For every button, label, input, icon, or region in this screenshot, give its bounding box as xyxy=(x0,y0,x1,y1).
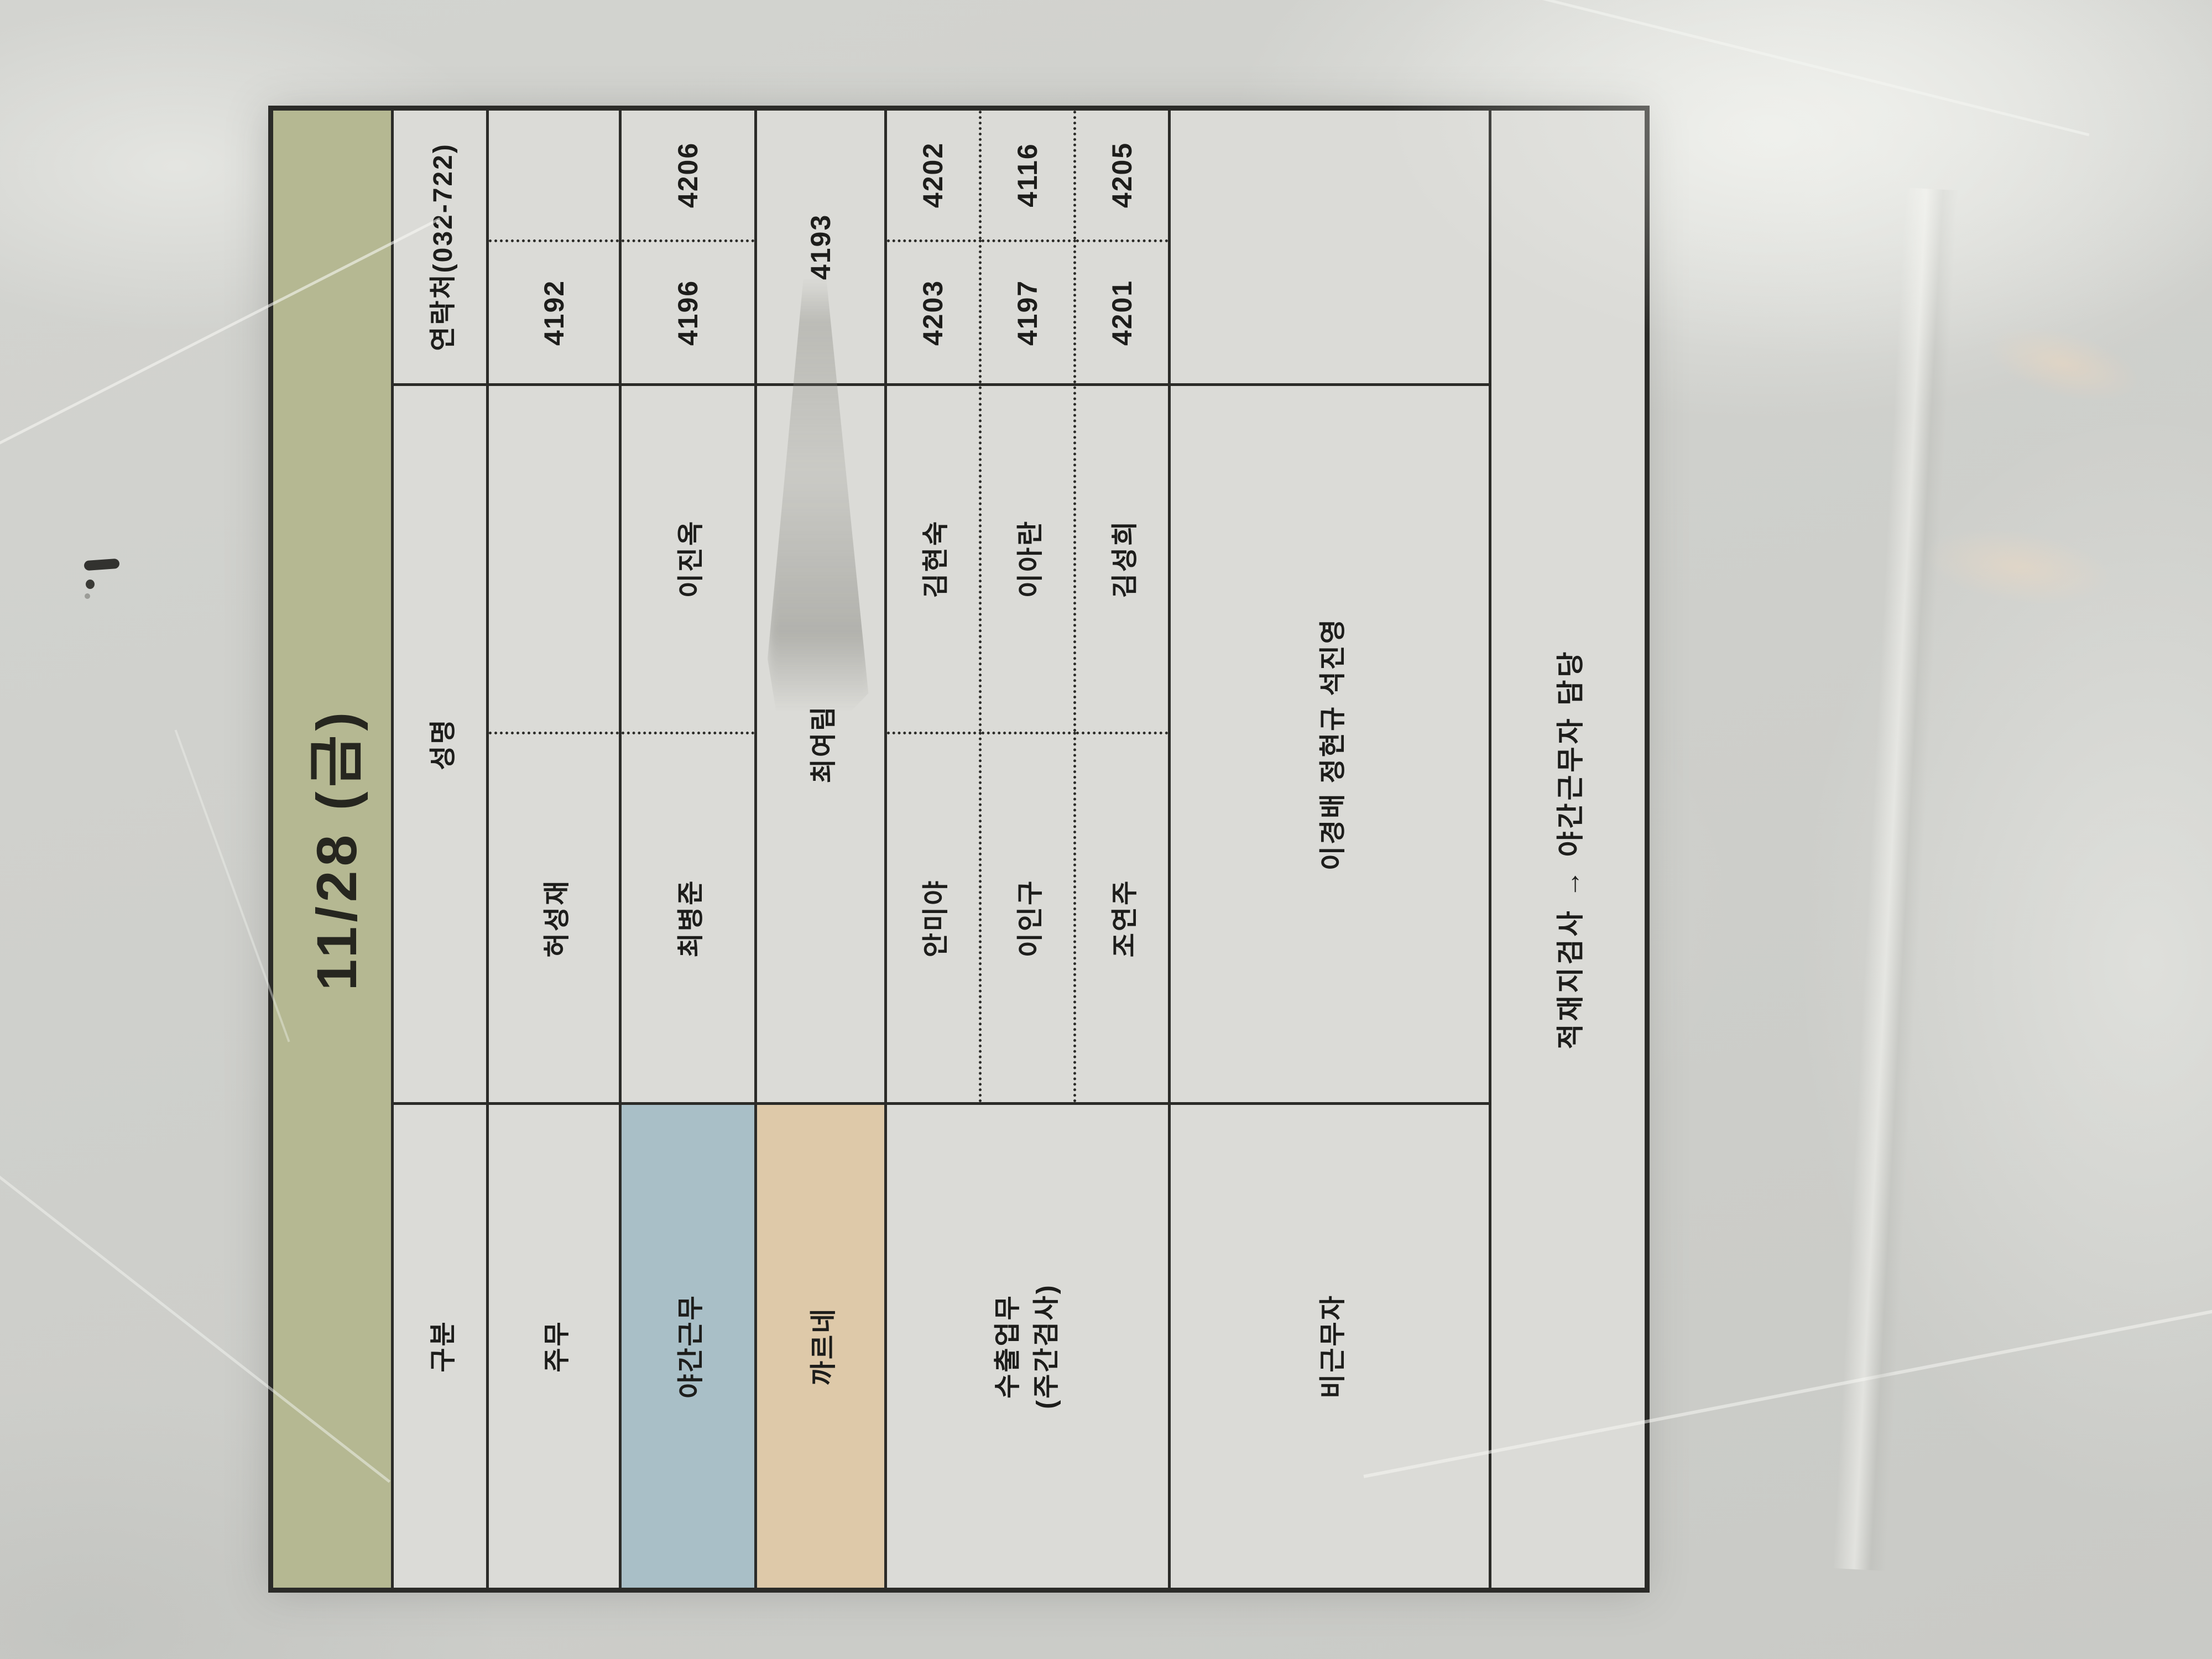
cell-export2-tel-right: 4116 xyxy=(980,108,1075,241)
cell-night-tel-right: 4206 xyxy=(620,108,756,241)
cell-export3-name-left: 조연주 xyxy=(1075,733,1170,1104)
header-row: 구분 성명 연락처(032-722) xyxy=(393,108,488,1590)
row-night-shift: 야간근무 최병준 이진옥 4196 4206 xyxy=(620,108,756,1590)
cell-offduty-tel xyxy=(1170,108,1490,384)
warm-glare-spot xyxy=(1980,313,2146,415)
title-row: 11/28 (금) xyxy=(271,108,393,1590)
ink-dot-icon xyxy=(86,580,95,589)
row-offduty: 비근무자 이경배 정현규 석진영 xyxy=(1170,108,1490,1590)
cell-export3-name-right: 김성희 xyxy=(1075,385,1170,733)
row-footnote: 적재지검사 → 야간근무자 담당 xyxy=(1490,108,1647,1590)
cell-night-category: 야간근무 xyxy=(620,1104,756,1590)
roster-sheet: 11/28 (금) 구분 성명 연락처(032-722) 주무 허성재 4192… xyxy=(268,111,1645,1593)
date-title: 11/28 (금) xyxy=(271,108,393,1590)
cell-offduty-category: 비근무자 xyxy=(1170,1104,1490,1590)
ink-dot-faint-icon xyxy=(85,593,90,599)
row-export-1: 수출업무 (주간검사) 안미야 김현숙 4203 4202 xyxy=(886,108,980,1590)
cell-export3-tel-left: 4201 xyxy=(1075,241,1170,385)
photo-of-duty-roster: 11/28 (금) 구분 성명 연락처(032-722) 주무 허성재 4192… xyxy=(0,0,2212,1659)
export-category-line1: 수출업무 xyxy=(989,1105,1027,1588)
cell-jumu-tel-right xyxy=(488,108,620,241)
cell-night-name-left: 최병준 xyxy=(620,733,756,1104)
cell-jumu-name-right xyxy=(488,385,620,733)
cell-export-category: 수출업무 (주간검사) xyxy=(886,1104,1170,1590)
cell-export3-tel-right: 4205 xyxy=(1075,108,1170,241)
cell-export2-tel-left: 4197 xyxy=(980,241,1075,385)
cell-jumu-category: 주무 xyxy=(488,1104,620,1590)
plastic-fold-band xyxy=(1833,187,1958,1571)
cell-night-name-right: 이진옥 xyxy=(620,385,756,733)
footnote-cell: 적재지검사 → 야간근무자 담당 xyxy=(1490,108,1647,1590)
cell-jumu-name-left: 허성재 xyxy=(488,733,620,1104)
header-name: 성명 xyxy=(393,385,488,1104)
export-category-line2: (주간검사) xyxy=(1027,1105,1066,1588)
cell-export1-name-left: 안미야 xyxy=(886,733,980,1104)
warm-glare-spot xyxy=(1921,518,2117,615)
cell-export1-tel-left: 4203 xyxy=(886,241,980,385)
ink-mark-icon xyxy=(84,559,119,571)
header-category: 구분 xyxy=(393,1104,488,1590)
cell-export2-name-left: 이인구 xyxy=(980,733,1075,1104)
cell-offduty-names: 이경배 정현규 석진영 xyxy=(1170,385,1490,1104)
cell-export1-name-right: 김현숙 xyxy=(886,385,980,733)
cell-jumu-tel-left: 4192 xyxy=(488,241,620,385)
cell-export1-tel-right: 4202 xyxy=(886,108,980,241)
header-contact: 연락처(032-722) xyxy=(393,108,488,384)
cell-carnet-category: 까르네 xyxy=(756,1104,886,1590)
duty-roster-table: 11/28 (금) 구분 성명 연락처(032-722) 주무 허성재 4192… xyxy=(268,106,1650,1593)
cell-night-tel-left: 4196 xyxy=(620,241,756,385)
cell-export2-name-right: 이아란 xyxy=(980,385,1075,733)
row-jumu: 주무 허성재 4192 xyxy=(488,108,620,1590)
